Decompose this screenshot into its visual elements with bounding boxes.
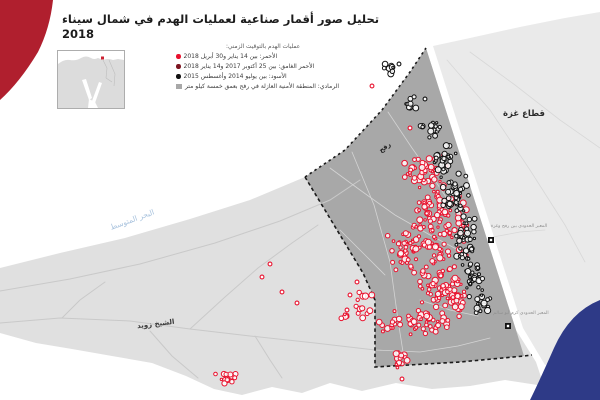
legend-rows: الأحمر: بين 14 يناير و30 أبريل 2018الأحم… bbox=[176, 53, 376, 90]
infographic-canvas: قطاع غزةرفحالشيخ زويدالبحر المتوسطالمعبر… bbox=[0, 0, 600, 400]
legend-row: الرمادي: المنطقة الأمنية العازلة في رفح … bbox=[176, 83, 376, 90]
inset-map-canvas bbox=[58, 51, 124, 108]
map-legend: عمليات الهدم بالتوقيت الزمني: الأحمر: بي… bbox=[176, 44, 376, 93]
legend-swatch-dot bbox=[176, 54, 181, 59]
page-title: تحليل صور أقمار صناعية لعمليات الهدم في … bbox=[62, 12, 379, 42]
legend-label: الأسود: بين يوليو 2014 وأغسطس 2015 bbox=[184, 73, 287, 80]
inset-locator-map bbox=[57, 50, 125, 109]
legend-swatch-dot bbox=[176, 64, 181, 69]
title-line-text: تحليل صور أقمار صناعية لعمليات الهدم في … bbox=[62, 12, 379, 27]
label-gaza-strip: قطاع غزة bbox=[503, 109, 545, 119]
legend-label: الرمادي: المنطقة الأمنية العازلة في رفح … bbox=[185, 83, 339, 90]
legend-row: الأحمر: بين 14 يناير و30 أبريل 2018 bbox=[176, 53, 376, 60]
decor-crimson-corner bbox=[0, 0, 53, 100]
legend-label: الأحمر: بين 14 يناير و30 أبريل 2018 bbox=[184, 53, 278, 60]
legend-row: الأسود: بين يوليو 2014 وأغسطس 2015 bbox=[176, 73, 376, 80]
inset-location-marker bbox=[101, 57, 104, 60]
legend-label: الأحمر الغامق: بين 25 أكتوبر 2017 و14 ين… bbox=[184, 63, 315, 70]
legend-row: الأحمر الغامق: بين 25 أكتوبر 2017 و14 ين… bbox=[176, 63, 376, 70]
legend-header: عمليات الهدم بالتوقيت الزمني: bbox=[176, 44, 376, 50]
label-rafah-crossing: المعبر الحدودي بين رفح وغزة bbox=[491, 224, 547, 229]
legend-swatch-dot bbox=[176, 74, 181, 79]
label-mediterranean-sea: البحر المتوسط bbox=[109, 208, 156, 232]
title-line-year: 2018 bbox=[62, 27, 379, 42]
label-kerem-shalom-crossing: المعبر الحدودي كرم أبو سالم bbox=[493, 309, 548, 316]
legend-swatch-square bbox=[176, 84, 182, 89]
